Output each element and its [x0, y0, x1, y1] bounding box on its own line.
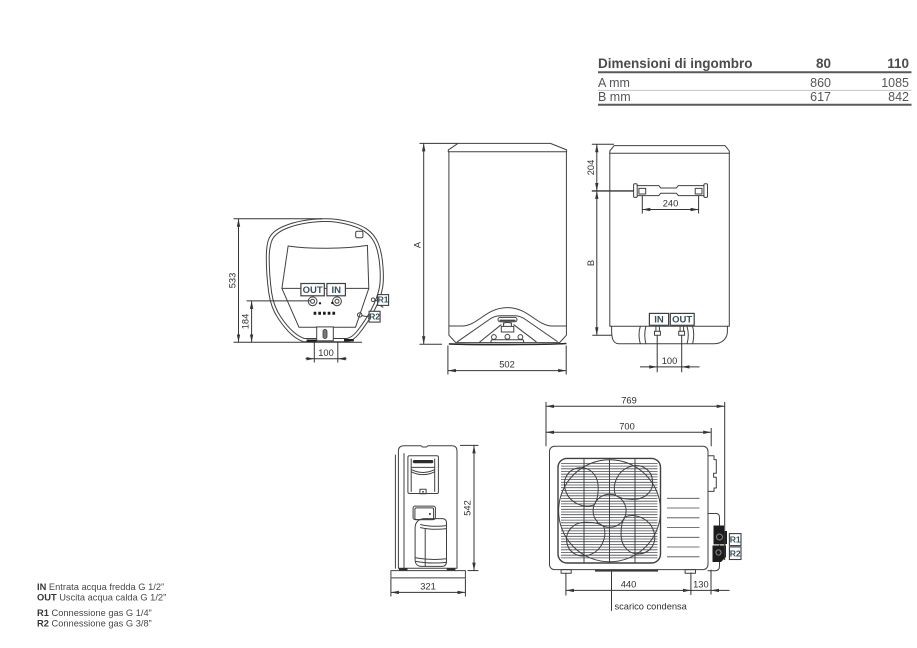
- svg-text:B: B: [586, 260, 596, 266]
- svg-text:240: 240: [663, 199, 679, 209]
- svg-text:R1: R1: [378, 295, 389, 305]
- svg-text:R2: R2: [730, 549, 741, 559]
- svg-text:OUT: OUT: [672, 315, 692, 326]
- svg-text:502: 502: [499, 360, 515, 370]
- svg-text:860: 860: [810, 76, 831, 90]
- svg-text:IN Entrata acqua fredda G 1/2”: IN Entrata acqua fredda G 1/2”: [37, 582, 164, 592]
- svg-text:542: 542: [463, 500, 473, 516]
- svg-text:100: 100: [318, 348, 334, 358]
- svg-text:110: 110: [887, 56, 909, 71]
- svg-text:R2: R2: [369, 311, 380, 321]
- svg-text:842: 842: [888, 90, 909, 104]
- svg-text:scarico condensa: scarico condensa: [615, 602, 688, 612]
- svg-text:617: 617: [810, 90, 831, 104]
- svg-text:IN: IN: [331, 285, 341, 296]
- svg-text:533: 533: [228, 273, 238, 289]
- svg-text:700: 700: [619, 421, 635, 431]
- svg-text:321: 321: [420, 581, 436, 591]
- svg-text:R2 Connessione gas G 3/8”: R2 Connessione gas G 3/8”: [37, 619, 152, 629]
- svg-text:80: 80: [816, 56, 831, 71]
- svg-text:IN: IN: [654, 315, 664, 326]
- svg-text:OUT: OUT: [303, 285, 323, 296]
- svg-text:Dimensioni di ingombro: Dimensioni di ingombro: [598, 56, 753, 71]
- svg-text:130: 130: [693, 579, 709, 589]
- svg-text:A mm: A mm: [598, 76, 630, 90]
- svg-text:184: 184: [241, 314, 251, 330]
- svg-text:OUT Uscita acqua calda G 1/2”: OUT Uscita acqua calda G 1/2”: [37, 593, 166, 603]
- svg-text:1085: 1085: [881, 76, 909, 90]
- svg-text:769: 769: [621, 395, 637, 405]
- svg-text:A: A: [413, 241, 423, 248]
- svg-text:100: 100: [662, 356, 678, 366]
- svg-text:204: 204: [586, 160, 596, 176]
- svg-text:R1 Connessione gas G 1/4”: R1 Connessione gas G 1/4”: [37, 608, 152, 618]
- svg-text:B mm: B mm: [598, 90, 631, 104]
- svg-text:440: 440: [621, 579, 637, 589]
- svg-text:R1: R1: [730, 535, 741, 545]
